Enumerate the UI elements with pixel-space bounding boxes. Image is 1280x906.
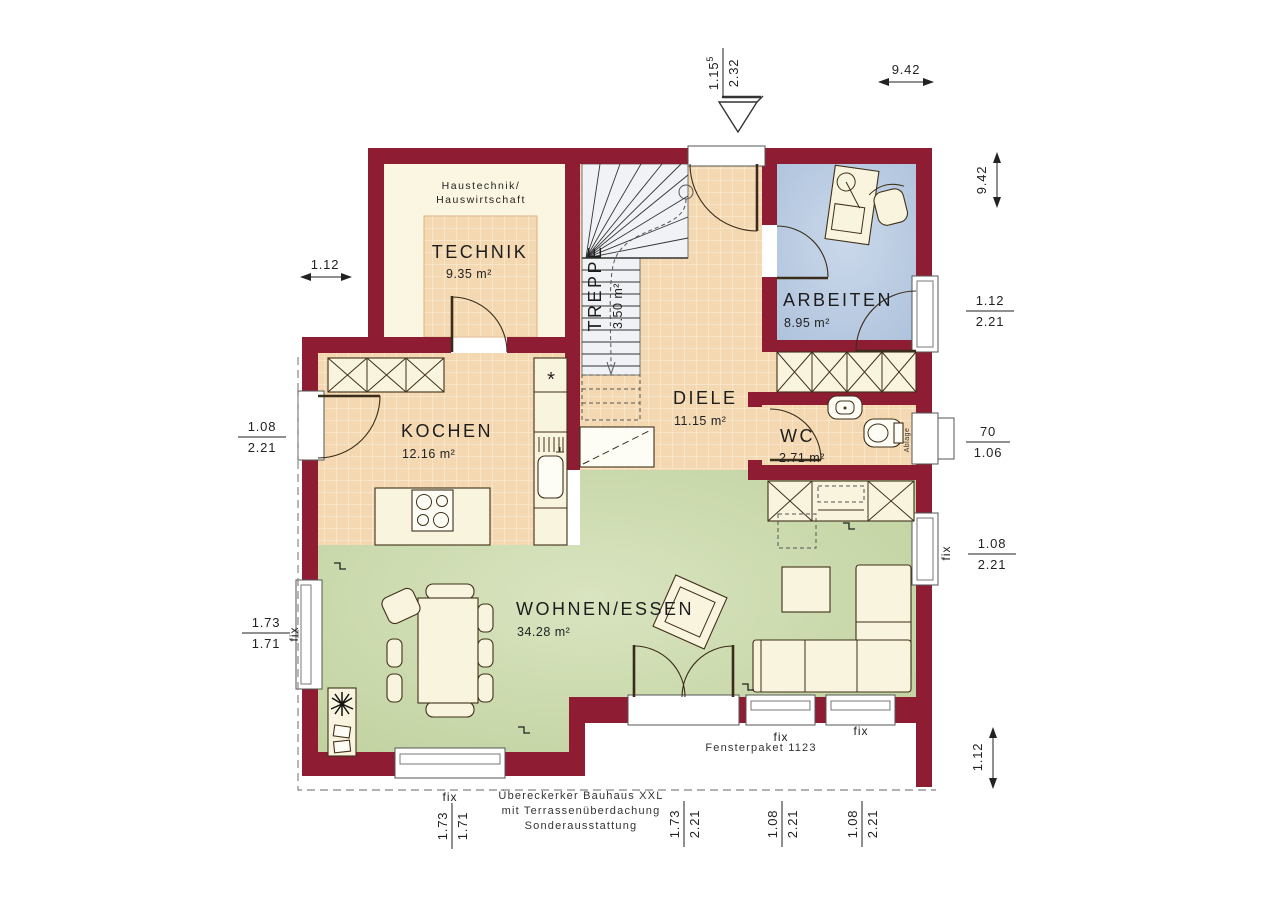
dim-right-wohnen: fix 1.08 2.21 <box>939 536 1016 572</box>
svg-text:fix: fix <box>939 546 953 561</box>
wc-toilet <box>864 419 903 447</box>
svg-text:2.21: 2.21 <box>785 810 800 839</box>
fensterpaket-label: Fensterpaket 1123 <box>705 742 816 754</box>
dining-set <box>380 584 493 717</box>
wardrobe-cabinets <box>777 352 916 392</box>
window-wc: Ablage <box>904 413 954 464</box>
svg-text:1.71: 1.71 <box>455 812 470 841</box>
technik-note1: Haustechnik/ <box>442 180 521 192</box>
technik-note2: Hauswirtschaft <box>436 194 526 206</box>
kitchen-sink <box>538 456 563 498</box>
svg-text:2.21: 2.21 <box>687 810 702 839</box>
svg-text:2.21: 2.21 <box>865 810 880 839</box>
coffee-table <box>782 567 830 612</box>
treppe-area: 3.50 m² <box>611 283 625 329</box>
svg-text:1.06: 1.06 <box>974 445 1003 460</box>
svg-text:1.155: 1.155 <box>705 56 721 90</box>
kitchen-island <box>375 488 490 545</box>
floor-plan-page: Ablage <box>0 0 1280 906</box>
dining-table <box>418 598 478 703</box>
svg-text:1.73: 1.73 <box>252 615 281 630</box>
kitchen-cabinets <box>328 358 444 392</box>
treppe-name: TREPPE <box>585 244 605 331</box>
wc-name: WC <box>780 426 815 446</box>
technik-name: TECHNIK <box>432 242 529 262</box>
window-wohnen-right <box>912 513 938 585</box>
chair <box>387 639 402 667</box>
window-fix-2 <box>826 695 895 725</box>
dim-bottom-fix2: fix 1.08 2.21 <box>845 724 880 847</box>
diele-area: 11.15 m² <box>674 414 726 428</box>
svg-text:2.21: 2.21 <box>976 314 1005 329</box>
understair-closet <box>580 427 654 467</box>
note-line3: Sonderausstattung <box>525 820 638 832</box>
wohnen-name: WOHNEN/ESSEN <box>516 599 694 619</box>
kochen-area: 12.16 m² <box>402 447 455 461</box>
dim-left-bay: 1.73 1.71 fix <box>242 615 301 651</box>
svg-text:2.32: 2.32 <box>726 59 741 88</box>
dim-left-kochen: 1.08 2.21 <box>238 419 286 455</box>
wc-shelf-label: Ablage <box>904 428 911 453</box>
dim-bottom-door: 1.73 2.21 <box>667 801 702 847</box>
svg-text:2.21: 2.21 <box>248 440 277 455</box>
chair <box>478 639 493 667</box>
technik-area: 9.35 m² <box>446 267 492 281</box>
dim-top-width: 9.42 <box>892 62 921 77</box>
plant-sideboard <box>328 688 356 756</box>
svg-text:70: 70 <box>980 424 996 439</box>
dim-right-arbeiten: 1.12 2.21 <box>966 293 1014 329</box>
wc-sink <box>828 396 862 419</box>
dim-right-height: 9.42 <box>974 166 989 195</box>
svg-text:1.08: 1.08 <box>248 419 277 434</box>
window-fix-1 <box>746 695 815 725</box>
svg-text:fix: fix <box>854 724 869 738</box>
entrance-door-frame <box>688 146 765 166</box>
chair <box>387 674 402 702</box>
svg-text:1.73: 1.73 <box>435 812 450 841</box>
svg-text:2.21: 2.21 <box>978 557 1007 572</box>
dim-left-offset: 1.12 <box>311 257 340 272</box>
wohnen-area: 34.28 m² <box>517 625 570 639</box>
kitchen-counter: * <box>534 358 567 545</box>
arbeiten-area: 8.95 m² <box>784 316 830 330</box>
bench-top <box>426 584 474 599</box>
chair <box>478 604 493 632</box>
note-line1: Übereckerker Bauhaus XXL <box>498 790 663 802</box>
wc-area: 2.71 m² <box>779 451 825 465</box>
kitchen-marker: * <box>547 369 555 391</box>
svg-text:1.08: 1.08 <box>978 536 1007 551</box>
svg-text:fix: fix <box>443 790 458 804</box>
entrance-arrow-icon <box>719 96 763 132</box>
svg-text:1.71: 1.71 <box>252 636 281 651</box>
dim-bottom-bay: fix 1.73 1.71 <box>435 790 470 849</box>
window-bay-bottom <box>395 748 505 778</box>
bench-bottom <box>426 702 474 717</box>
diele-name: DIELE <box>673 388 738 408</box>
svg-text:1.12: 1.12 <box>976 293 1005 308</box>
svg-text:1.08: 1.08 <box>765 810 780 839</box>
floor-plan-drawing: Ablage <box>0 0 1280 906</box>
svg-text:1.08: 1.08 <box>845 810 860 839</box>
arbeiten-name: ARBEITEN <box>783 290 893 310</box>
chair <box>478 674 493 702</box>
note-line2: mit Terrassenüberdachung <box>502 805 661 817</box>
dim-right-wc: 70 1.06 <box>966 424 1010 460</box>
svg-text:1.73: 1.73 <box>667 810 682 839</box>
dim-entrance: 1.155 2.32 <box>705 48 741 98</box>
dim-right-bottom: 1.12 <box>970 743 985 772</box>
svg-text:fix: fix <box>287 627 301 642</box>
kochen-name: KOCHEN <box>401 421 493 441</box>
